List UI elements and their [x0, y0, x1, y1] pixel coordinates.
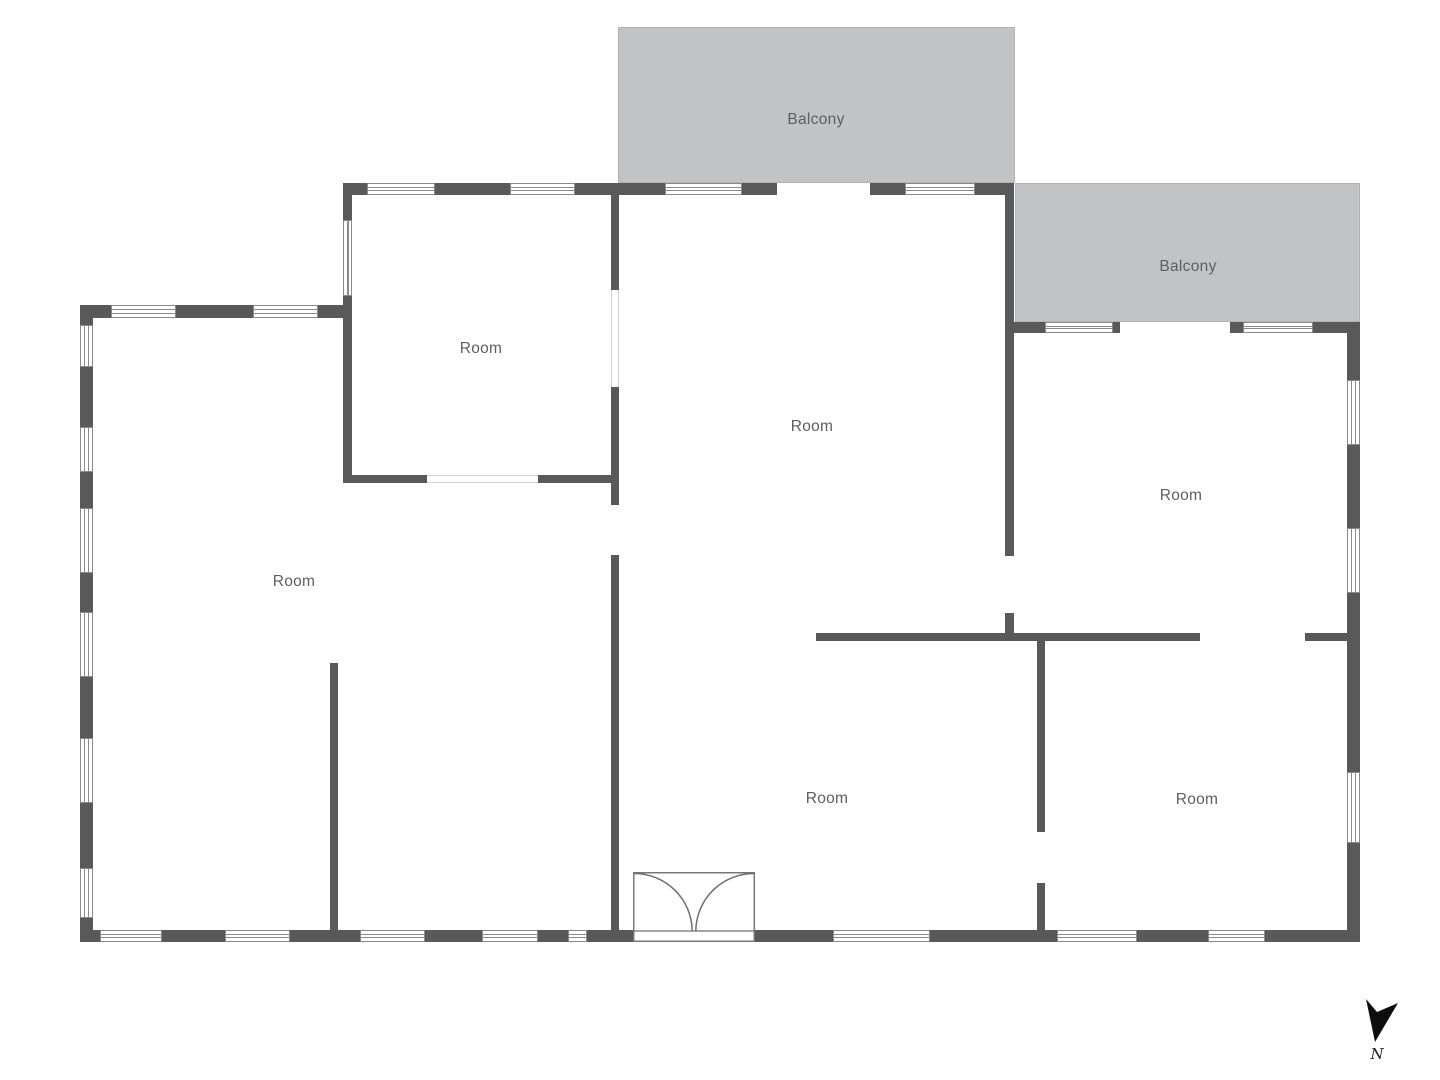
window-glass-line	[84, 869, 89, 917]
wall-segment	[425, 930, 482, 942]
window-glass-line	[84, 326, 89, 366]
window	[1045, 322, 1113, 333]
north-label: N	[1370, 1045, 1383, 1063]
window-glass-line	[226, 934, 289, 938]
window-glass-line	[254, 309, 317, 314]
window	[253, 305, 318, 318]
wall-segment	[611, 387, 619, 505]
wall-segment	[1347, 445, 1360, 528]
window-glass-line	[347, 221, 349, 295]
window-glass-line	[1058, 934, 1136, 938]
wall-segment	[80, 367, 93, 427]
wall-segment	[538, 930, 568, 942]
balcony-area	[1015, 183, 1360, 322]
wall-segment	[330, 663, 338, 930]
wall-segment	[80, 803, 93, 868]
window	[80, 427, 93, 472]
window-glass-line	[1351, 529, 1356, 592]
balcony-label: Balcony	[1159, 258, 1216, 276]
wall-segment	[1014, 322, 1045, 333]
window	[1057, 930, 1137, 942]
wall-segment	[80, 305, 111, 318]
window	[665, 183, 742, 195]
room-label: Room	[806, 790, 849, 808]
wall-segment	[611, 195, 619, 290]
wall-segment	[80, 677, 93, 738]
window-glass-line	[834, 934, 929, 938]
wall-segment	[1037, 883, 1045, 930]
window-glass-line	[569, 934, 586, 938]
wall-segment	[1137, 930, 1208, 942]
window	[833, 930, 930, 942]
wall-segment	[343, 183, 367, 195]
window	[80, 738, 93, 803]
wall-segment	[176, 305, 253, 318]
window	[111, 305, 176, 318]
wall-segment	[435, 183, 510, 195]
wall-segment	[816, 633, 1200, 641]
window-glass-line	[84, 428, 89, 471]
wall-segment	[1005, 195, 1014, 556]
wall-segment	[575, 183, 665, 195]
window-glass-line	[1351, 773, 1356, 842]
window	[482, 930, 538, 942]
window	[367, 183, 435, 195]
floor-plan-canvas: BalconyBalconyRoomRoomRoomRoomRoomRoomN	[0, 0, 1440, 1080]
window	[225, 930, 290, 942]
balcony-label: Balcony	[787, 111, 844, 129]
wall-segment	[290, 930, 360, 942]
window-glass-line	[101, 934, 161, 938]
wall-opening	[427, 475, 538, 483]
window	[100, 930, 162, 942]
window-glass-line	[666, 187, 741, 191]
window-glass-line	[84, 613, 89, 676]
wall-segment	[162, 930, 225, 942]
wall-segment	[80, 472, 93, 508]
north-arrow-icon	[1362, 996, 1402, 1044]
wall-segment	[975, 183, 1014, 195]
window	[343, 220, 352, 296]
wall-segment	[80, 573, 93, 612]
window	[80, 612, 93, 677]
wall-segment	[538, 475, 619, 483]
window	[80, 868, 93, 918]
window-glass-line	[511, 187, 574, 191]
wall-segment	[930, 930, 1057, 942]
window-glass-line	[483, 934, 537, 938]
window-glass-line	[906, 187, 974, 191]
window-glass-line	[361, 934, 424, 938]
north-arrow	[1362, 996, 1402, 1044]
window-glass-line	[368, 187, 434, 191]
window-glass-line	[1046, 326, 1112, 329]
window-glass-line	[1351, 381, 1356, 444]
window	[510, 183, 575, 195]
window-glass-line	[84, 509, 89, 572]
wall-segment	[1305, 633, 1350, 641]
window-glass-line	[1244, 326, 1312, 329]
wall-segment	[1347, 322, 1360, 380]
window	[80, 508, 93, 573]
wall-segment	[343, 296, 352, 483]
room-label: Room	[791, 418, 834, 436]
wall-segment	[343, 475, 427, 483]
wall-opening	[611, 290, 619, 387]
wall-segment	[1230, 322, 1243, 333]
window-glass-line	[84, 739, 89, 802]
wall-segment	[611, 555, 619, 930]
room-label: Room	[273, 573, 316, 591]
window	[80, 325, 93, 367]
window	[360, 930, 425, 942]
window	[1347, 528, 1360, 593]
window	[1347, 772, 1360, 843]
window	[1208, 930, 1265, 942]
window	[1243, 322, 1313, 333]
wall-segment	[870, 183, 905, 195]
wall-segment	[742, 183, 777, 195]
window-glass-line	[112, 309, 175, 314]
wall-segment	[1347, 843, 1360, 942]
balcony-area	[618, 27, 1015, 183]
wall-segment	[1037, 641, 1045, 832]
wall-segment	[1113, 322, 1120, 333]
window-glass-line	[1209, 934, 1264, 938]
wall-segment	[587, 930, 633, 942]
wall-segment	[80, 930, 100, 942]
room-label: Room	[460, 340, 503, 358]
window	[1347, 380, 1360, 445]
window	[568, 930, 587, 942]
entry-double-door	[633, 872, 755, 942]
wall-segment	[1265, 930, 1360, 942]
room-label: Room	[1160, 487, 1203, 505]
wall-segment	[755, 930, 833, 942]
window	[905, 183, 975, 195]
wall-segment	[1347, 593, 1360, 772]
double-door-icon	[633, 872, 755, 942]
room-label: Room	[1176, 791, 1219, 809]
